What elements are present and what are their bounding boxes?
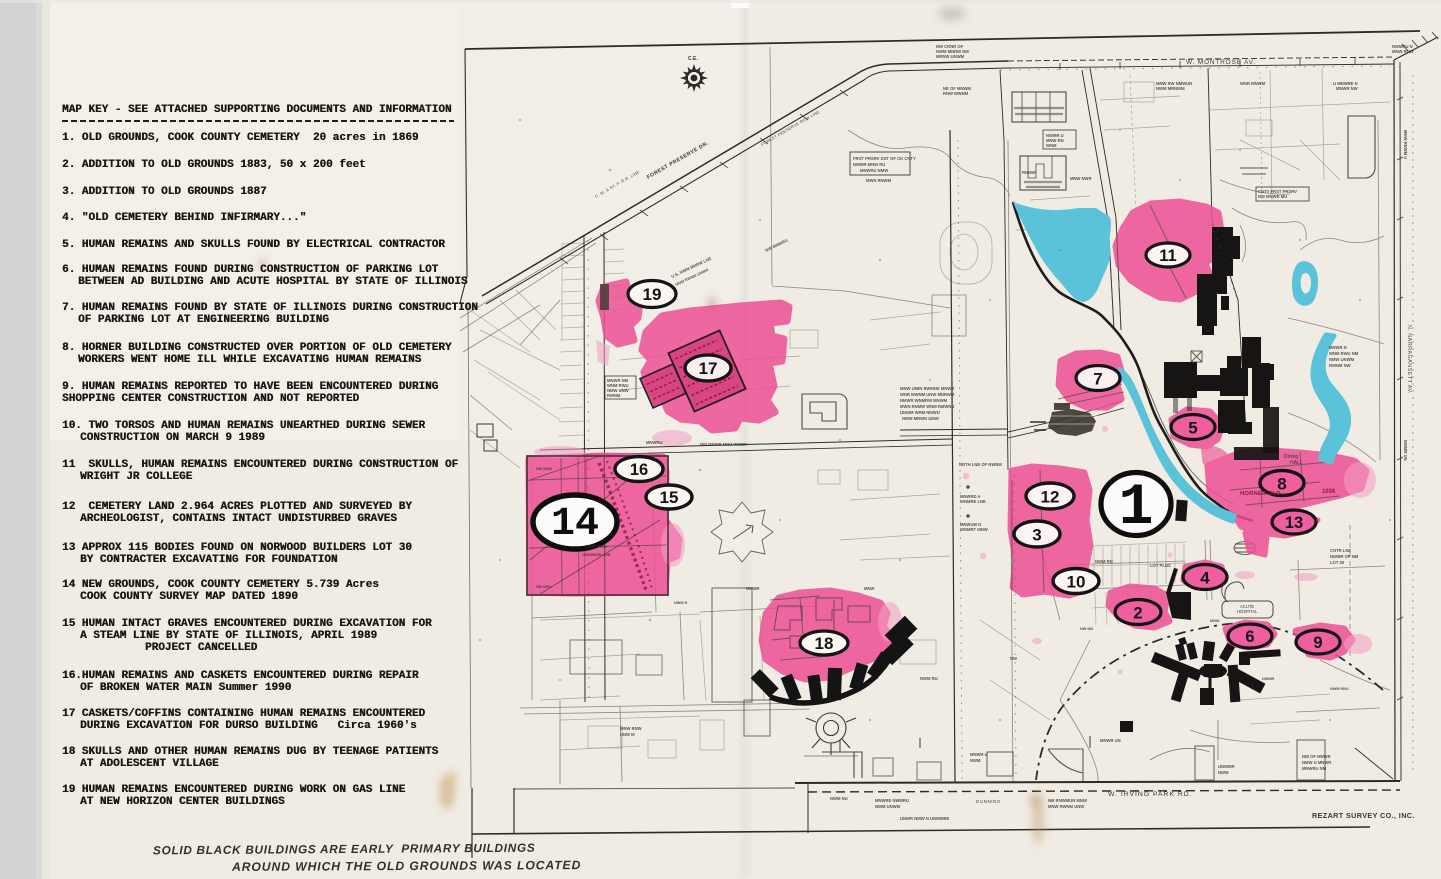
- svg-text:10: 10: [1067, 573, 1086, 592]
- svg-text:MNWR N: MNWR N: [1329, 345, 1347, 350]
- svg-text:MNW NWR: MNW NWR: [1070, 176, 1092, 181]
- svg-text:DUNNING: DUNNING: [976, 799, 1001, 804]
- svg-text:NWMR OF NM: NWMR OF NM: [1330, 554, 1359, 559]
- svg-text:MNW: MNW: [1210, 619, 1220, 623]
- svg-text:NWM RN: NWM RN: [1095, 559, 1113, 564]
- svg-text:UNWR NMW N UNWMRE: UNWR NMW N UNWMRE: [900, 816, 950, 821]
- svg-text:MNWRU NM: MNWRU NM: [1302, 766, 1327, 771]
- svg-text:1: 1: [1119, 476, 1154, 541]
- svg-text:NWM UNWM: NWM UNWM: [875, 804, 901, 809]
- svg-text:13: 13: [1285, 514, 1303, 532]
- svg-text:11: 11: [1159, 247, 1176, 265]
- svg-text:NW MNWR MU: NW MNWR MU: [1258, 194, 1287, 199]
- svg-text:NWM RNU: NWM RNU: [1330, 687, 1349, 691]
- svg-text:HORNER BLD.: HORNER BLD.: [1240, 491, 1283, 497]
- svg-text:MNWRE NWMRU: MNWRE NWMRU: [875, 798, 909, 803]
- svg-text:MNWRU NMW: MNWRU NMW: [860, 168, 888, 173]
- svg-text:WNMRT MNW: WNMRT MNW: [960, 527, 988, 532]
- svg-text:NM RNWMUN MNW: NM RNWMUN MNW: [1048, 798, 1087, 803]
- svg-text:15: 15: [660, 488, 679, 507]
- svg-text:HOSPITAL: HOSPITAL: [1237, 609, 1258, 614]
- svg-text:NMW UNWM: NMW UNWM: [1329, 357, 1355, 362]
- svg-text:UNWMR: UNWMR: [1218, 764, 1235, 769]
- svg-text:2: 2: [1133, 604, 1142, 623]
- svg-text:NW MU: NW MU: [1080, 627, 1094, 631]
- svg-text:W. MONTROSE AV.: W. MONTROSE AV.: [1186, 59, 1256, 66]
- svg-text:NWM NU: NWM NU: [830, 796, 848, 801]
- svg-text:W. IRVING PARK RD.: W. IRVING PARK RD.: [1108, 791, 1193, 798]
- svg-text:NW MNR: NW MNR: [536, 467, 552, 471]
- svg-text:MNWR NW: MNWR NW: [1336, 86, 1358, 91]
- svg-text:C.E.: C.E.: [688, 56, 698, 62]
- svg-text:MWN RNMW WNM RMWNU: MWN RNMW WNM RMWNU: [900, 404, 954, 409]
- svg-text:9: 9: [1313, 634, 1322, 652]
- svg-text:FRST PRSRV DST OF CK CNTY: FRST PRSRV DST OF CK CNTY: [853, 156, 916, 161]
- svg-text:NW: NW: [1010, 656, 1017, 661]
- svg-text:NWM MRWN UMW: NWM MRWN UMW: [902, 416, 939, 421]
- svg-text:3: 3: [1032, 526, 1041, 545]
- svg-text:MNW RWNM UNW: MNW RWNM UNW: [1048, 804, 1084, 809]
- svg-text:NWM: NWM: [970, 758, 981, 763]
- svg-text:MNWR U: MNWR U: [970, 752, 988, 757]
- svg-text:12: 12: [1041, 488, 1060, 507]
- svg-text:WNM: WNM: [1046, 143, 1057, 148]
- svg-text:MNW UMIN RWMNE MNWR: MNW UMIN RWMNE MNWR: [900, 386, 954, 391]
- svg-text:WNMRE LNE: WNMRE LNE: [960, 499, 986, 504]
- svg-text:MNW RNW: MNW RNW: [1392, 49, 1414, 54]
- svg-text:NMWR WNMRW MNWM: NMWR WNMRW MNWM: [900, 398, 948, 403]
- svg-text:NW MNWR LNE: NW MNWR LNE: [582, 553, 611, 557]
- svg-text:CNTY FRM: CNTY FRM: [585, 544, 607, 549]
- svg-text:N. NARRAGANSETT AV.: N. NARRAGANSETT AV.: [1406, 325, 1412, 394]
- svg-text:18: 18: [815, 634, 834, 653]
- svg-text:16: 16: [630, 461, 648, 479]
- svg-text:1936: 1936: [1322, 489, 1336, 495]
- svg-text:RWNM: RWNM: [607, 393, 621, 398]
- svg-text:LOT PLNS: LOT PLNS: [1150, 563, 1171, 568]
- svg-text:WNR MWNM UNW MNRWM: WNR MWNM UNW MNRWM: [900, 392, 955, 397]
- svg-text:NWMR UN: NWMR UN: [1403, 440, 1408, 461]
- svg-text:NWM: NWM: [1218, 770, 1229, 775]
- svg-text:NW MNWR MNU WNMR: NW MNWR MNU WNMR: [700, 442, 747, 447]
- svg-text:NMW U MNWR: NMW U MNWR: [1302, 760, 1331, 765]
- svg-text:NWMR: NWMR: [746, 586, 760, 591]
- svg-text:19: 19: [643, 285, 662, 304]
- svg-text:NWMR: NWMR: [1262, 677, 1274, 681]
- svg-text:MNWRU: MNWRU: [646, 440, 663, 445]
- svg-text:NWMR MNW RU: NWMR MNW RU: [853, 162, 885, 167]
- svg-text:MRNW UNWM: MRNW UNWM: [936, 54, 965, 59]
- svg-text:LOT 30: LOT 30: [1330, 560, 1345, 565]
- svg-text:NRTH LNE OF NWNM: NRTH LNE OF NWNM: [959, 462, 1002, 467]
- svg-text:MNW: MNW: [864, 586, 875, 591]
- svg-text:RNW MWNM: RNW MWNM: [943, 91, 969, 96]
- svg-text:NWM MRNWM: NWM MRNWM: [1156, 86, 1185, 91]
- svg-text:MWN RNWM: MWN RNWM: [866, 178, 892, 183]
- svg-text:14: 14: [551, 502, 599, 547]
- svg-text:UNW M: UNW M: [620, 732, 635, 737]
- svg-text:CNTR LNE: CNTR LNE: [1330, 548, 1351, 553]
- svg-text:MNWR UN: MNWR UN: [1100, 738, 1121, 743]
- svg-text:REZART SURVEY CO., INC.: REZART SURVEY CO., INC.: [1312, 811, 1415, 820]
- svg-text:RWNM NW: RWNM NW: [1329, 363, 1351, 368]
- svg-text:MNW RNWM U: MNW RNWM U: [1403, 130, 1408, 159]
- svg-text:4: 4: [1200, 569, 1210, 588]
- svg-text:WNM RWU NM: WNM RWU NM: [1329, 351, 1359, 356]
- svg-text:5: 5: [1188, 419, 1197, 438]
- svg-text:NW OF MNWR: NW OF MNWR: [1302, 754, 1331, 759]
- svg-text:RNWM: RNWM: [1022, 170, 1036, 175]
- svg-text:7: 7: [1093, 370, 1102, 389]
- svg-text:MNW RNW: MNW RNW: [620, 726, 642, 731]
- svg-text:NWM R: NWM R: [674, 601, 688, 605]
- svg-text:6: 6: [1245, 628, 1254, 646]
- svg-text:17: 17: [699, 359, 718, 378]
- svg-text:HALL: HALL: [1290, 460, 1303, 466]
- svg-text:UNWM WRM NMWU: UNWM WRM NMWU: [900, 410, 940, 415]
- svg-text:NM WRU: NM WRU: [536, 585, 552, 589]
- svg-text:NWM RU: NWM RU: [920, 676, 938, 681]
- svg-text:WNR MNWM: WNR MNWM: [1240, 81, 1266, 86]
